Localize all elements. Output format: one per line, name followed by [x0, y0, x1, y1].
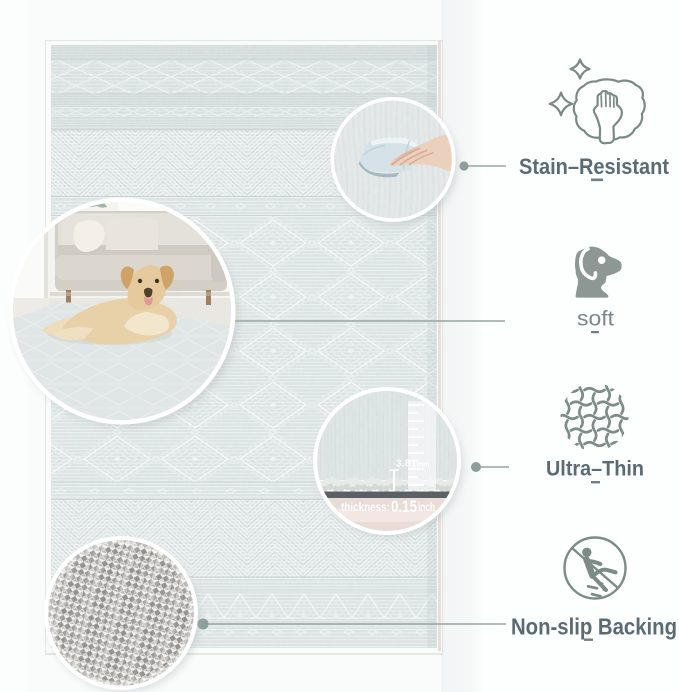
svg-text:soft: soft — [577, 308, 614, 331]
svg-text:Ultra–Thin: Ultra–Thin — [546, 458, 644, 481]
svg-text:thickness:: thickness: — [341, 502, 390, 514]
svg-text:inch: inch — [418, 502, 435, 514]
svg-text:Stain–Resistant: Stain–Resistant — [519, 154, 670, 179]
svg-text:0.15: 0.15 — [391, 497, 417, 516]
svg-text:Non-slip Backing: Non-slip Backing — [511, 614, 677, 640]
svg-text:3.81mm: 3.81mm — [396, 458, 430, 470]
